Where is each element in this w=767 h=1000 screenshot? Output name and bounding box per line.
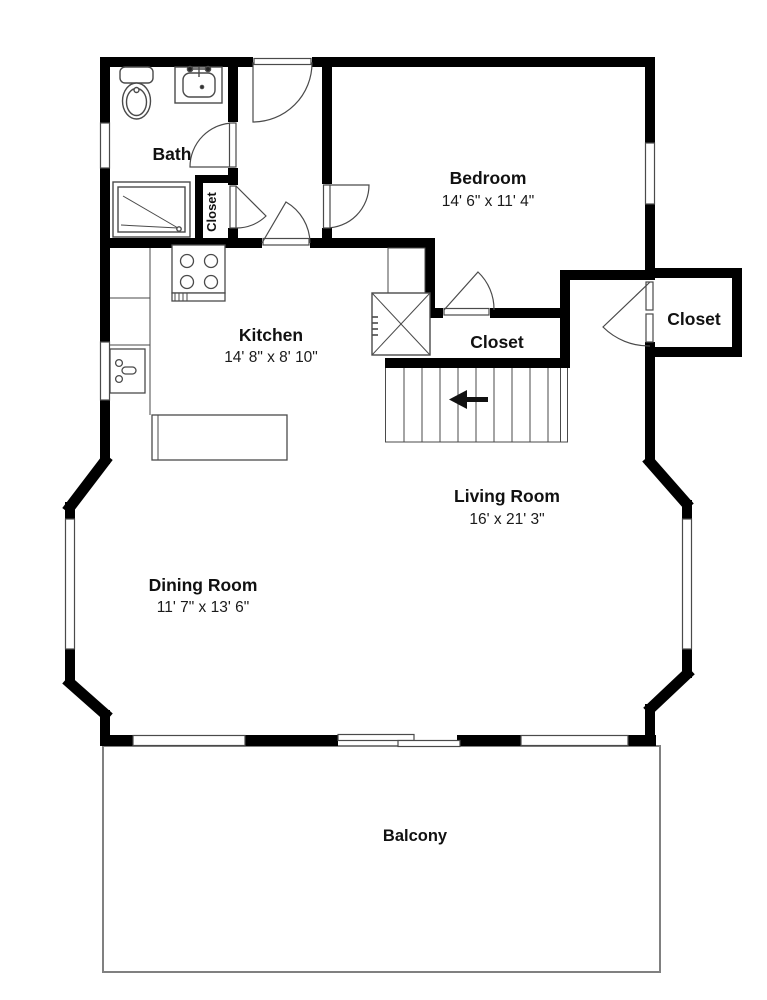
bathroom-sink-icon bbox=[175, 66, 222, 103]
bedroom-dims: 14' 6" x 11' 4" bbox=[442, 193, 534, 210]
bedroom-window bbox=[646, 143, 655, 204]
bottom-left-window bbox=[133, 736, 245, 746]
dining-room-dims: 11' 7" x 13' 6" bbox=[157, 599, 249, 616]
bath-window bbox=[101, 123, 110, 168]
kitchen-window bbox=[101, 342, 110, 400]
cabinet bbox=[388, 248, 425, 293]
entry-door-swing bbox=[253, 59, 312, 123]
bath-door-swing bbox=[190, 123, 236, 167]
living-bay-window bbox=[683, 519, 692, 649]
floor-plan-drawing: Bath Closet Bedroom 14' 6" x 11' 4" Kitc… bbox=[0, 0, 767, 1000]
stairs bbox=[385, 368, 568, 442]
chimney-icon bbox=[372, 293, 430, 355]
floor-plan-page: Bath Closet Bedroom 14' 6" x 11' 4" Kitc… bbox=[0, 0, 767, 1000]
toilet-icon bbox=[120, 67, 153, 119]
kitchen-label: Kitchen bbox=[239, 325, 303, 345]
entry-closet-label: Closet bbox=[667, 309, 721, 329]
bath-closet-label: Closet bbox=[204, 191, 219, 231]
living-room-dims: 16' x 21' 3" bbox=[469, 511, 544, 528]
kitchen-dims: 14' 8" x 8' 10" bbox=[224, 349, 318, 366]
hall-closet-door-swing bbox=[444, 272, 494, 315]
living-room-label: Living Room bbox=[454, 486, 560, 506]
bedroom-label: Bedroom bbox=[450, 168, 527, 188]
stove-icon bbox=[172, 245, 225, 301]
shower-icon bbox=[113, 182, 190, 237]
kitchen-sink-icon bbox=[110, 349, 145, 393]
bedroom-door-swing bbox=[324, 185, 370, 228]
kitchen-door-swing bbox=[262, 202, 310, 245]
bath-closet-door-swing bbox=[230, 186, 266, 228]
sliding-door bbox=[338, 735, 460, 747]
dining-room-label: Dining Room bbox=[149, 575, 258, 595]
balcony-label: Balcony bbox=[383, 827, 448, 845]
balcony-outline bbox=[103, 746, 660, 972]
stairs-arrow-icon bbox=[449, 390, 488, 409]
hall-closet-label: Closet bbox=[470, 332, 524, 352]
bottom-right-window bbox=[521, 736, 628, 746]
dining-bay-window bbox=[66, 519, 75, 649]
entry-closet-door-swing bbox=[603, 282, 653, 346]
bath-label: Bath bbox=[153, 144, 192, 164]
